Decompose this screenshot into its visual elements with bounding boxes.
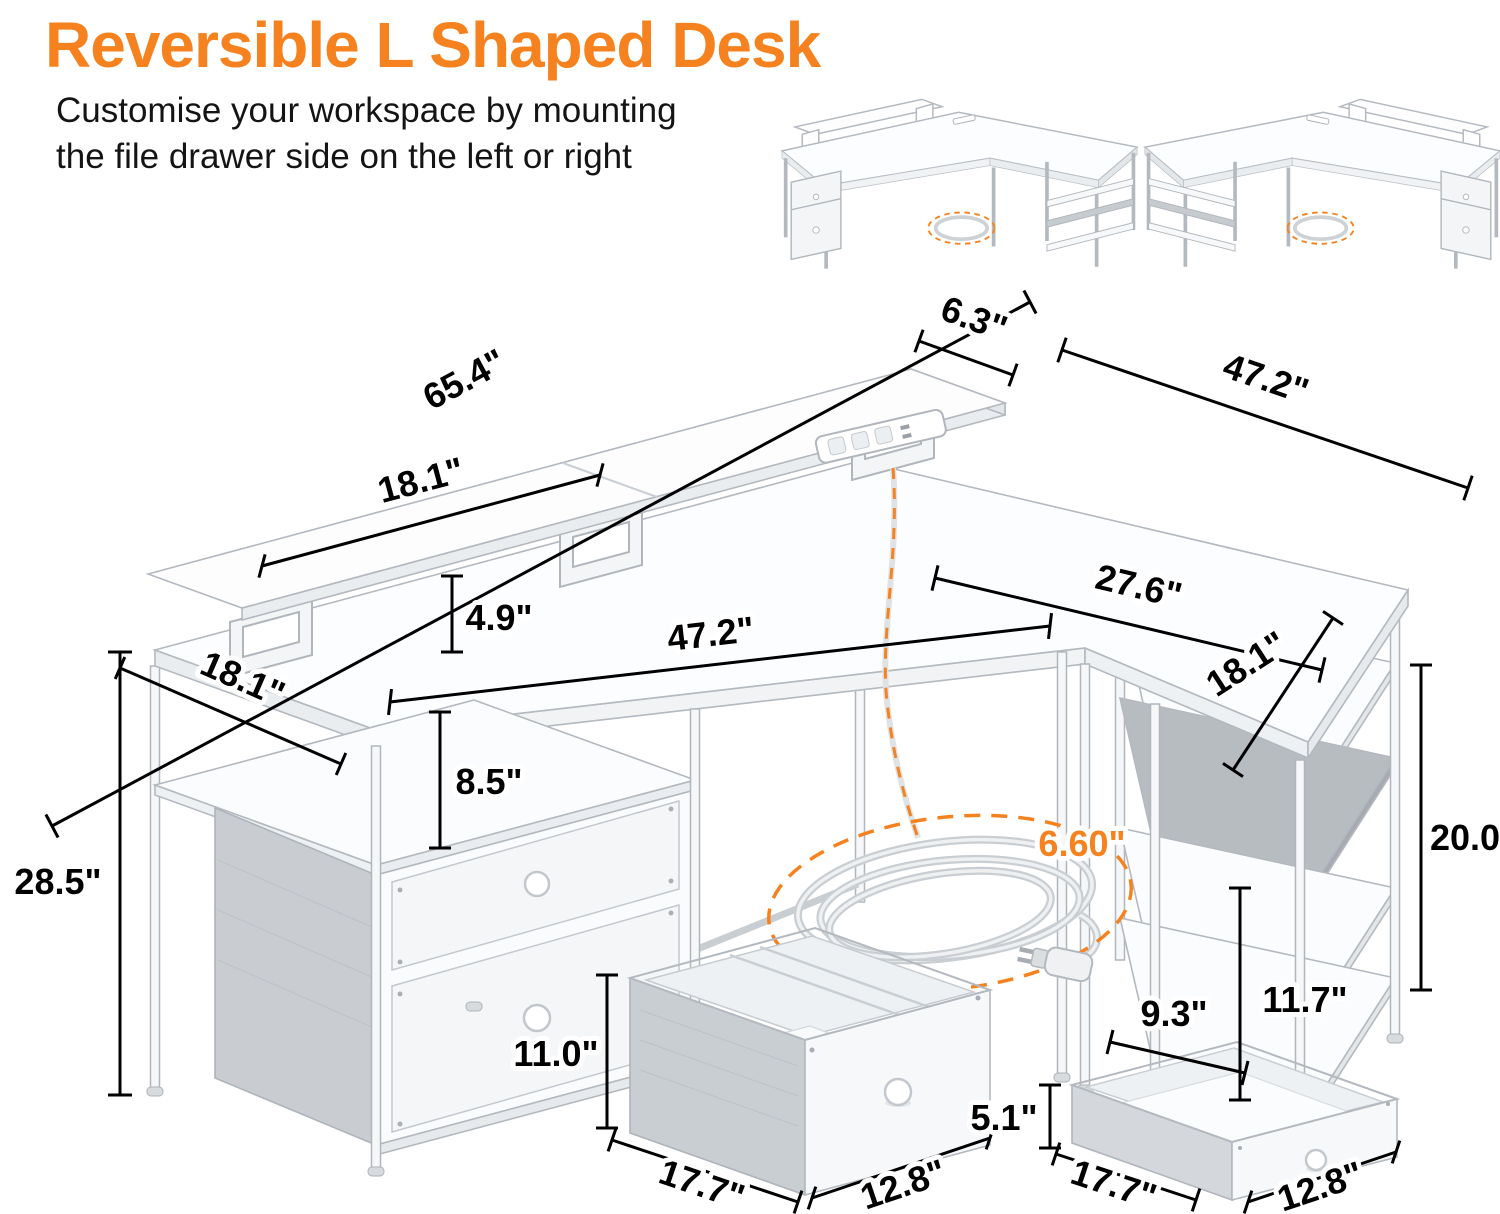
thumbnail-desk-drawer-left bbox=[782, 99, 1137, 268]
desk-dimension-diagram: 65.4" 6.3" 47.2" 18.1" bbox=[0, 0, 1500, 1214]
dim-label-tower-shelf-gap: 11.7" bbox=[1262, 979, 1347, 1020]
dim-label-desk-height: 28.5" bbox=[14, 861, 101, 902]
thumbnail-desk-drawer-right bbox=[1145, 99, 1500, 268]
dim-label-monitor-stand-height: 4.9" bbox=[465, 597, 532, 638]
drawer-knob bbox=[524, 1005, 550, 1031]
dim-label-monitor-stand-depth: 6.3" bbox=[936, 288, 1013, 349]
dim-small-drawer-height bbox=[1039, 1085, 1061, 1148]
product-infographic: Reversible L Shaped Desk Customise your … bbox=[0, 0, 1500, 1214]
dim-label-file-drawer-height: 11.0" bbox=[513, 1033, 598, 1074]
dim-label-shelf-gap: 8.5" bbox=[455, 761, 522, 802]
dim-label-right-desk-length: 47.2" bbox=[1218, 345, 1314, 412]
desktop bbox=[155, 461, 1408, 758]
dim-tower-height bbox=[1410, 665, 1432, 990]
dim-label-tower-height: 20.0" bbox=[1430, 817, 1500, 858]
dim-label-top-total: 65.4" bbox=[416, 340, 512, 417]
left-drawer-cabinet bbox=[155, 700, 695, 1155]
dim-label-small-drawer-height: 5.1" bbox=[970, 1097, 1037, 1138]
dim-desk-height bbox=[108, 652, 132, 1095]
drawer-knob bbox=[525, 872, 549, 896]
dim-label-bottom-shelf-depth: 9.3" bbox=[1140, 993, 1207, 1034]
drawer-knob bbox=[885, 1079, 911, 1105]
dim-label-cable-length: 6.60" bbox=[1038, 823, 1125, 864]
desk-illustration bbox=[147, 369, 1408, 1200]
